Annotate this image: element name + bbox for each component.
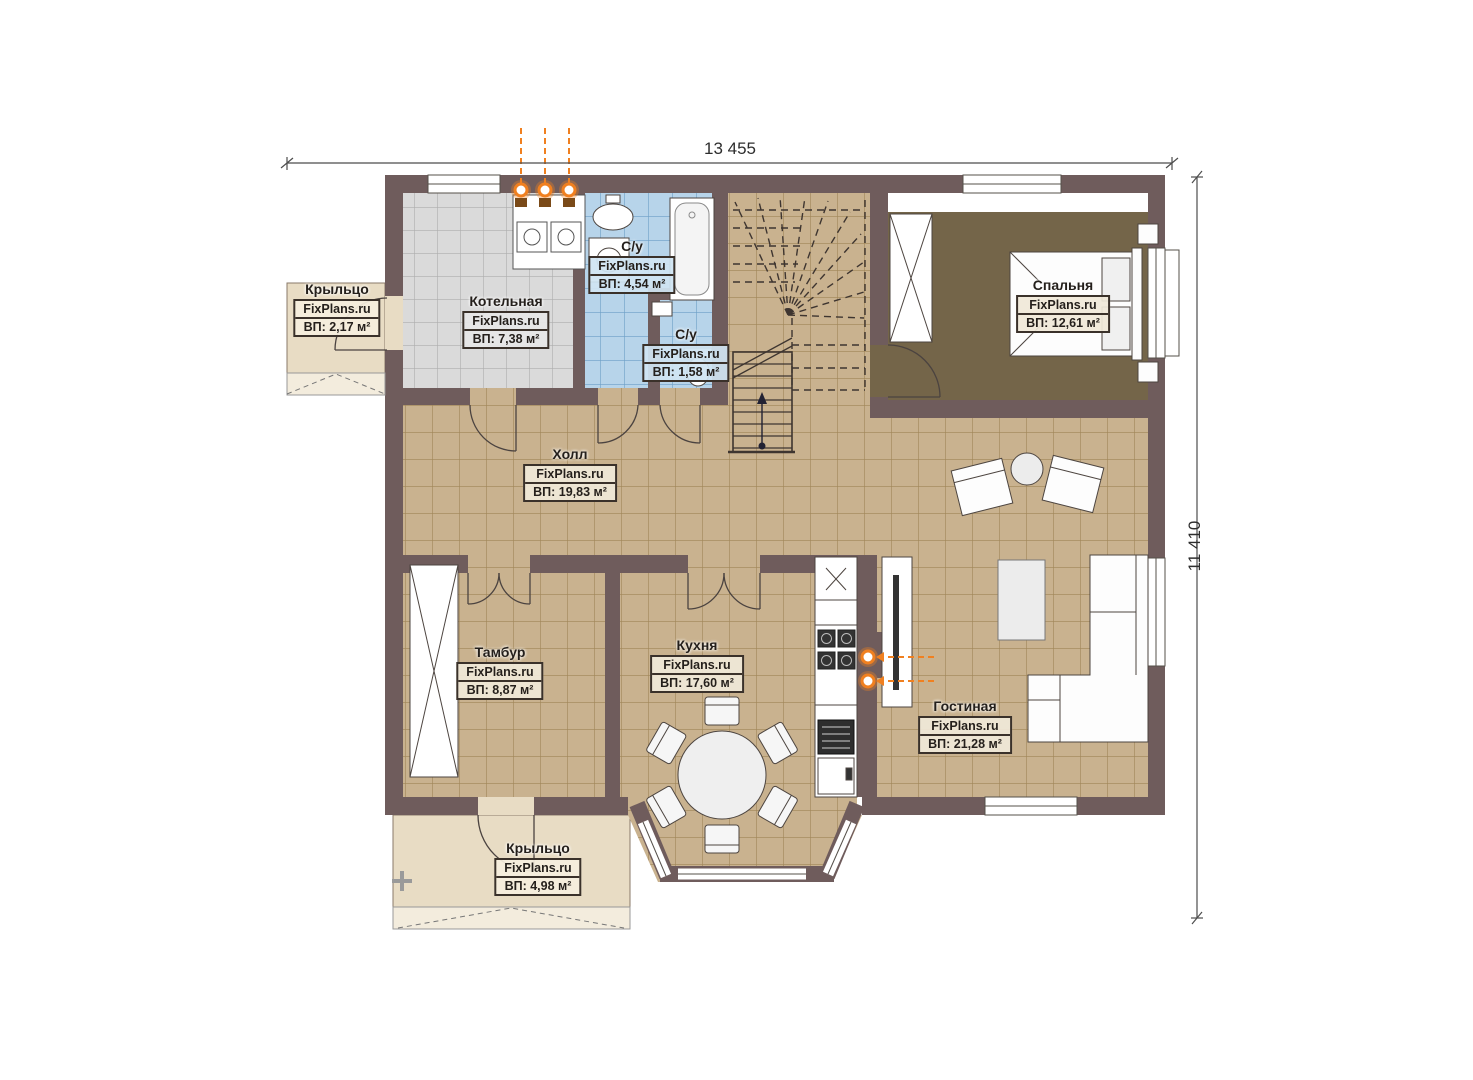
room-label-kitchen: Кухня FixPlans.ru ВП: 17,60 м²: [650, 637, 744, 693]
room-area: ВП: 12,61 м²: [1018, 315, 1108, 331]
room-name: Холл: [552, 446, 587, 462]
window-living-right: [1148, 558, 1165, 666]
room-name: Котельная: [469, 293, 542, 309]
floor-plan-drawing: [0, 0, 1473, 1080]
window-top-left: [428, 175, 500, 193]
room-label-living: Гостиная FixPlans.ru ВП: 21,28 м²: [918, 698, 1012, 754]
room-area: ВП: 21,28 м²: [920, 736, 1010, 752]
watermark: FixPlans.ru: [590, 258, 673, 276]
coffee-table: [998, 560, 1045, 640]
window-bedroom-right: [1148, 248, 1179, 358]
room-name: Спальня: [1033, 277, 1093, 293]
gas-riser-icons: [511, 128, 579, 207]
room-name: С/у: [675, 326, 697, 342]
room-name: Крыльцо: [305, 281, 369, 297]
stairwell-floor: [728, 193, 870, 405]
room-label-bedroom: Спальня FixPlans.ru ВП: 12,61 м²: [1016, 277, 1110, 333]
room-name: Крыльцо: [506, 840, 570, 856]
watermark: FixPlans.ru: [920, 718, 1010, 736]
room-name: Гостиная: [933, 698, 996, 714]
room-name: Тамбур: [475, 644, 526, 660]
watermark: FixPlans.ru: [295, 301, 378, 319]
dimension-height-label: 11 410: [1185, 501, 1205, 591]
floor-plan: 13 455 11 410 Крыльцо FixPlans.ru ВП: 2,…: [0, 0, 1473, 1080]
bedroom-wardrobe: [890, 214, 932, 342]
kitchen-sink-unit: [818, 758, 854, 794]
room-area: ВП: 4,54 м²: [590, 276, 673, 292]
room-label-hall: Холл FixPlans.ru ВП: 19,83 м²: [523, 446, 617, 502]
room-label-boiler: Котельная FixPlans.ru ВП: 7,38 м²: [462, 293, 549, 349]
watermark: FixPlans.ru: [525, 466, 615, 484]
room-area: ВП: 7,38 м²: [464, 331, 547, 347]
dining-table: [678, 731, 766, 819]
window-bedroom-top: [963, 175, 1061, 193]
bathtub: [670, 198, 714, 300]
tv-panel: [882, 557, 912, 707]
watermark: FixPlans.ru: [496, 860, 579, 878]
room-area: ВП: 17,60 м²: [652, 675, 742, 691]
room-area: ВП: 2,17 м²: [295, 319, 378, 335]
room-name: Кухня: [677, 637, 718, 653]
watermark: FixPlans.ru: [644, 346, 727, 364]
window-living-bottom: [985, 797, 1077, 815]
wc-sink: [652, 302, 672, 316]
room-area: ВП: 4,98 м²: [496, 878, 579, 894]
room-label-vestibule: Тамбур FixPlans.ru ВП: 8,87 м²: [456, 644, 543, 700]
room-label-bathroom: С/у FixPlans.ru ВП: 4,54 м²: [588, 238, 675, 294]
room-area: ВП: 19,83 м²: [525, 484, 615, 500]
room-area: ВП: 8,87 м²: [458, 682, 541, 698]
room-label-porch-bottom: Крыльцо FixPlans.ru ВП: 4,98 м²: [494, 840, 581, 896]
oven: [818, 720, 854, 754]
room-name: С/у: [621, 238, 643, 254]
watermark: FixPlans.ru: [652, 657, 742, 675]
side-table: [1011, 453, 1043, 485]
room-label-porch-left: Крыльцо FixPlans.ru ВП: 2,17 м²: [293, 281, 380, 337]
watermark: FixPlans.ru: [458, 664, 541, 682]
room-area: ВП: 1,58 м²: [644, 364, 727, 380]
nightstand: [1138, 224, 1158, 244]
watermark: FixPlans.ru: [464, 313, 547, 331]
dimension-width-label: 13 455: [660, 139, 800, 159]
nightstand: [1138, 362, 1158, 382]
room-label-wc: С/у FixPlans.ru ВП: 1,58 м²: [642, 326, 729, 382]
vestibule-wardrobe: [410, 565, 458, 777]
gas-point-icon: [511, 180, 579, 207]
watermark: FixPlans.ru: [1018, 297, 1108, 315]
